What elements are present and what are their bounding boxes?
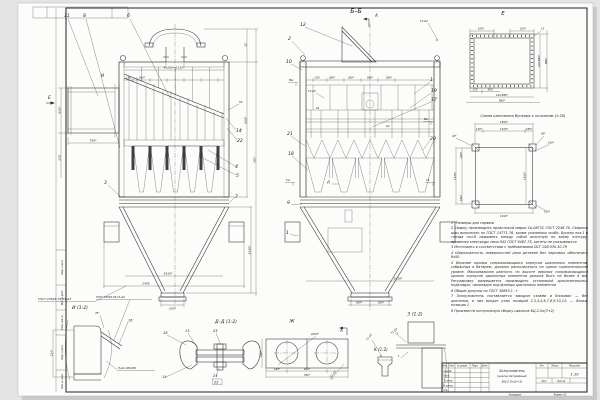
weld-marker: К3 bbox=[239, 100, 243, 104]
tb-col: Подп. bbox=[472, 365, 479, 368]
dim: 400* bbox=[304, 367, 311, 371]
weld-marker: К2 bbox=[386, 124, 390, 128]
margin-label: Подп. и дата bbox=[61, 259, 64, 275]
weld-marker: К1 bbox=[316, 106, 320, 110]
detail-title: К (1:2) bbox=[374, 347, 388, 352]
dim: 888* bbox=[544, 57, 548, 64]
dim: 140* bbox=[476, 127, 483, 131]
detail-title: Д–Д (1:2) bbox=[214, 319, 237, 325]
dim: 1610* bbox=[523, 171, 527, 180]
dim: 980* bbox=[499, 98, 506, 102]
note-item: 1 *Размеры для справок bbox=[451, 221, 588, 225]
tb-col: Масштаб bbox=[569, 365, 580, 368]
tb-col: Лит. bbox=[538, 365, 544, 368]
dim: 100* bbox=[478, 27, 485, 31]
callout: 20 bbox=[430, 136, 436, 142]
callout: 14 bbox=[162, 375, 167, 379]
technical-notes: 1 *Размеры для справок 2 Сварку производ… bbox=[451, 221, 588, 314]
cut-label: Д bbox=[326, 180, 330, 184]
dim: 130* bbox=[544, 210, 551, 214]
detail-marker: И bbox=[101, 73, 104, 78]
drawing-sheet: Подп. и дата Инв. № дубл. Взам. инв. № П… bbox=[0, 0, 600, 400]
callout: 11 bbox=[64, 13, 70, 19]
dim: 150 bbox=[126, 76, 131, 80]
dim: 2405 bbox=[142, 282, 150, 286]
weld-flag: Т1-Δ4 bbox=[420, 19, 428, 23]
section-title: Б–Б bbox=[350, 8, 362, 15]
callout: 4 bbox=[235, 164, 238, 170]
tb-col: Лист bbox=[448, 365, 455, 368]
dim: 125 bbox=[473, 88, 478, 92]
weld-gost-label: ГОСТ 23518-79-Т1-Δ3 bbox=[38, 297, 71, 301]
margin-label: Инв. № подл. bbox=[61, 373, 64, 388]
dim: 40* bbox=[452, 134, 457, 138]
dim: 300 bbox=[488, 88, 493, 92]
view-arrow-label: Е bbox=[48, 95, 51, 101]
dim: 280* bbox=[386, 76, 393, 80]
callout: 8 bbox=[83, 13, 86, 19]
tb-row: Утв. bbox=[444, 389, 449, 392]
dim: 180* bbox=[274, 367, 281, 371]
tb-row: Разраб. bbox=[444, 370, 453, 373]
dim: 180* bbox=[526, 127, 533, 131]
drawing-canvas: Подп. и дата Инв. № дубл. Взам. инв. № П… bbox=[0, 0, 600, 400]
note-item: 3 Изготовить в соответствии с требования… bbox=[451, 245, 588, 249]
scheme-title: Схема крепления бункера к колоннам (1:20… bbox=[481, 114, 567, 118]
weld-label: Н-Δ3-100/200 bbox=[118, 366, 136, 370]
callout: 1 bbox=[430, 77, 433, 83]
callout: 23 bbox=[213, 329, 218, 333]
dim: 4х280=1120* bbox=[163, 66, 185, 70]
tb-col: Листов bbox=[556, 380, 566, 383]
callout: 13 bbox=[185, 329, 190, 333]
callout: 1 bbox=[286, 230, 289, 236]
dim: 787 bbox=[253, 157, 257, 163]
tb-col: № докум. bbox=[456, 365, 468, 368]
note-item: 4 Шероховатость поверхностей реза детале… bbox=[451, 251, 588, 260]
dim: 1610* bbox=[500, 214, 509, 218]
tb-footer: Копировал bbox=[509, 393, 522, 396]
dim: 150 bbox=[58, 155, 62, 161]
note-item: 2 Сварку производить проволокой марки Св… bbox=[451, 226, 588, 244]
dim: 100* bbox=[548, 141, 555, 145]
dim: 100* bbox=[520, 27, 527, 31]
tb-col: Дата bbox=[481, 365, 488, 368]
view-title: Е bbox=[501, 11, 505, 17]
dim: 1320* bbox=[500, 127, 509, 131]
tb-col: Лист bbox=[540, 380, 547, 383]
detail-title: З (1:2) bbox=[407, 312, 423, 318]
dim: 628* bbox=[244, 116, 248, 124]
dim: 180* bbox=[459, 194, 463, 201]
tb-footer: Формат А1 bbox=[554, 393, 567, 396]
dim: 300* bbox=[356, 301, 363, 305]
callout: 19 bbox=[431, 88, 437, 94]
level-flag: Вв bbox=[424, 117, 428, 121]
dim: 200* bbox=[169, 307, 177, 311]
callout: 7 bbox=[235, 194, 238, 200]
tb-row: Н.контр. bbox=[444, 384, 454, 387]
callout: 6 bbox=[127, 13, 130, 19]
callout: 25 bbox=[214, 381, 219, 385]
callout: 3 bbox=[104, 180, 107, 186]
dim: 750* bbox=[89, 139, 97, 143]
doc-name: БЦ-2-5х(3+2) bbox=[502, 380, 523, 384]
dim: 150 bbox=[315, 76, 320, 80]
callout: 12 bbox=[541, 27, 545, 31]
callout: 16 bbox=[128, 319, 133, 323]
cut-label: А bbox=[374, 13, 378, 18]
callout: 2 bbox=[288, 36, 291, 42]
dim: 760* bbox=[304, 373, 311, 377]
dim: 160* bbox=[459, 151, 463, 158]
scale-value: 1:10 bbox=[570, 373, 579, 377]
dim: 52 bbox=[244, 43, 248, 47]
callout: 18 bbox=[288, 151, 294, 157]
margin-label: Подп. и дата bbox=[61, 344, 64, 360]
note-item: 5 Верхние кромки соприкасающихся корпусо… bbox=[451, 261, 588, 288]
callout: 18 bbox=[163, 331, 168, 335]
dim: 180* bbox=[259, 350, 263, 357]
weld-gost-label: ГОСТ 23518-79-Т1-Δ3 bbox=[96, 295, 125, 299]
dim: 280* bbox=[348, 76, 355, 80]
callout: 14 bbox=[236, 128, 242, 134]
callout: 5 bbox=[236, 173, 239, 179]
dim: 470-880* bbox=[537, 54, 541, 67]
dim: 1570* bbox=[453, 171, 457, 180]
note-item: 8 Произвести контрольную сборку циклона … bbox=[451, 309, 588, 313]
dim: 1430* bbox=[248, 245, 252, 255]
dim: 300* bbox=[378, 301, 385, 305]
doc-name: Золоуловитель bbox=[499, 369, 525, 373]
margin-label: Взам. инв. № bbox=[61, 314, 64, 330]
dim: 280* bbox=[139, 76, 146, 80]
dim: 124* bbox=[50, 349, 54, 356]
note-item: 7 Золоуловитель поставляется заводом узл… bbox=[451, 294, 588, 307]
dim: 280* bbox=[367, 76, 374, 80]
doc-name: (циклон батарейный) bbox=[497, 374, 526, 378]
dim: 40* bbox=[541, 132, 546, 136]
callout: 21 bbox=[287, 131, 293, 137]
weld-flag: Т1-Δ3 bbox=[308, 89, 316, 93]
tb-col: Масса bbox=[552, 365, 560, 368]
tb-row: Т.контр. bbox=[444, 380, 454, 383]
callout: 22 bbox=[237, 138, 243, 144]
level-flag: Гв bbox=[426, 178, 430, 182]
dim: 650* bbox=[58, 106, 62, 114]
callout: 9 bbox=[287, 200, 290, 206]
detail-title: И (1:2) bbox=[72, 305, 88, 311]
tb-col: Изм. bbox=[443, 365, 448, 368]
note-item: 6 Общие допуски по ГОСТ 30893.1 - t bbox=[451, 289, 588, 293]
tb-row: Пров. bbox=[444, 375, 451, 378]
view-title: Ж bbox=[289, 319, 296, 325]
dim: 280* bbox=[329, 76, 336, 80]
dim: 1850* bbox=[500, 120, 509, 124]
callout: 17 bbox=[431, 97, 437, 103]
callout: 24 bbox=[213, 374, 218, 378]
dim: 1610* bbox=[163, 272, 173, 276]
level-flag: Вм bbox=[289, 78, 294, 82]
dim: 410-880* bbox=[496, 93, 509, 97]
dim: 1610* bbox=[393, 277, 403, 281]
dim: 45° bbox=[95, 311, 100, 315]
dim: ø300* bbox=[310, 332, 320, 336]
